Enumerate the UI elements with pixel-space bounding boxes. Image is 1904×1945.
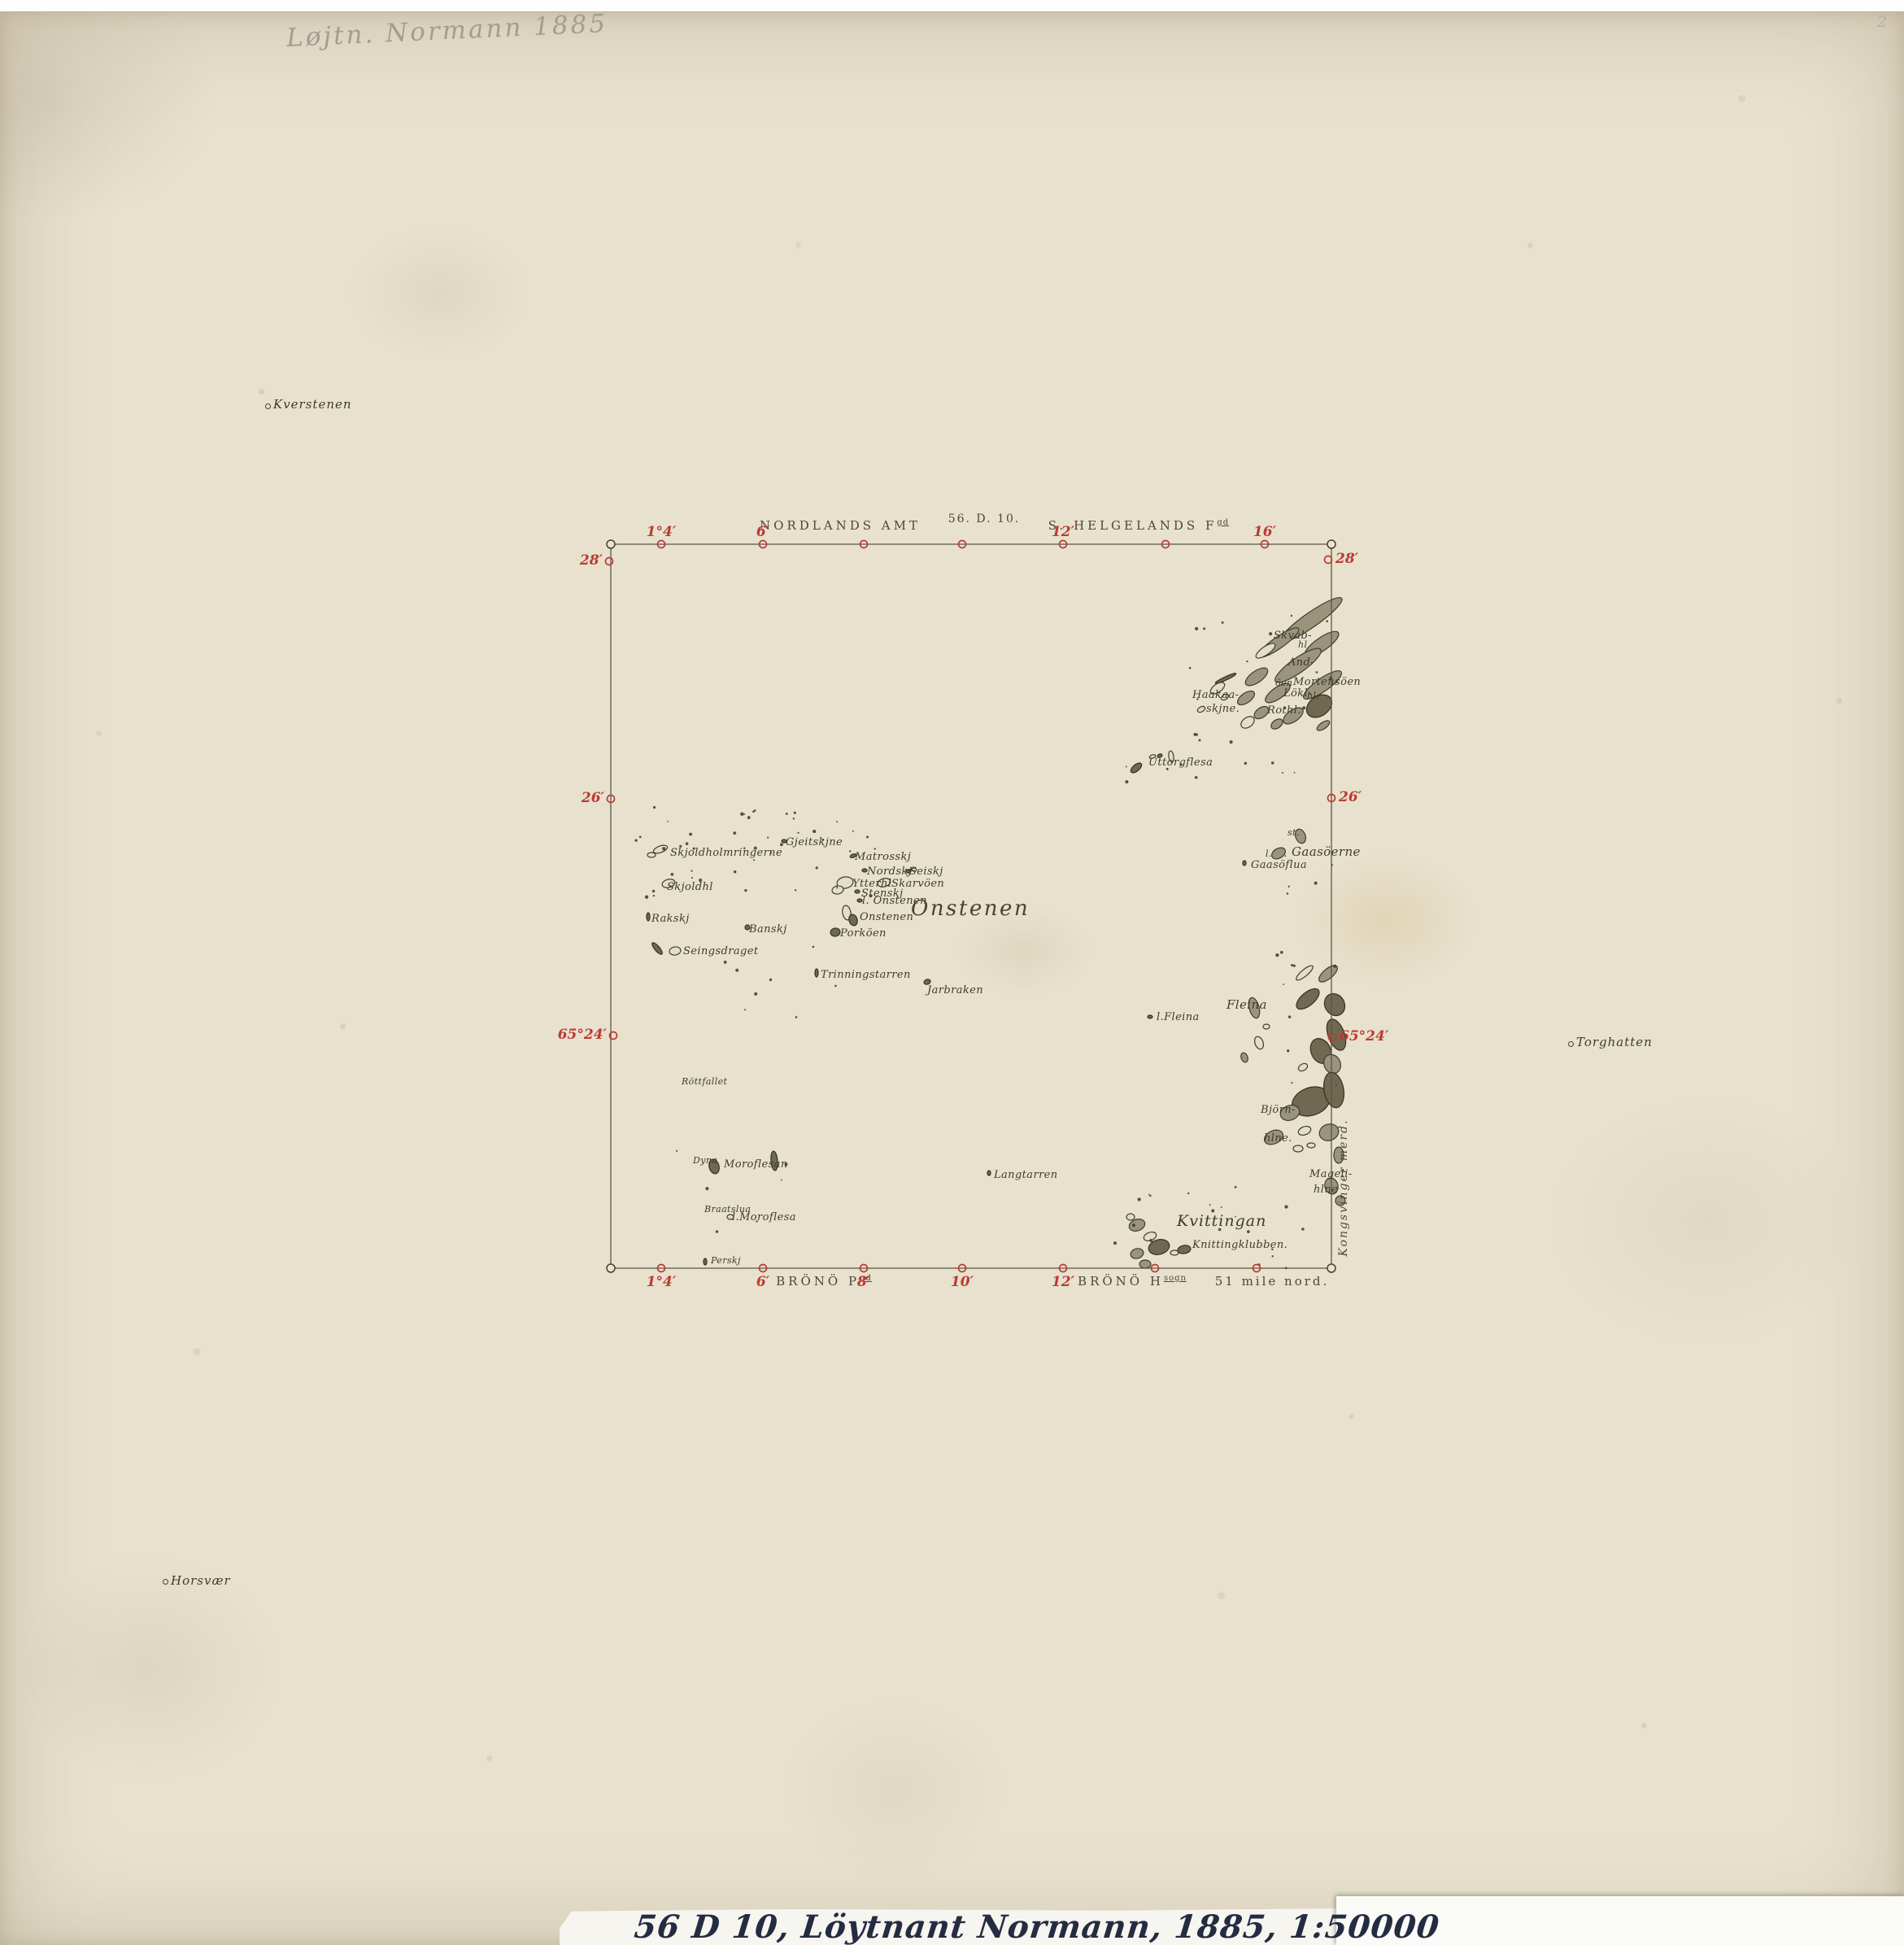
place-label: Rothl. <box>1267 704 1301 717</box>
place-label: Gjeitskjne <box>786 836 843 848</box>
tick-label: 28′ <box>580 552 603 569</box>
place-label: hlne. <box>1264 1132 1292 1145</box>
place-label: Björn- <box>1261 1104 1296 1116</box>
place-label: Trinningstarren <box>821 969 911 981</box>
place-label: hl. <box>1298 639 1310 650</box>
tick-label: 1°4′ <box>647 524 677 540</box>
place-label: l.Moroflesa <box>732 1211 796 1223</box>
place-label: st. <box>1287 827 1300 838</box>
place-label: Perskj <box>711 1255 741 1266</box>
corner-pencil-mark: 2 <box>1877 13 1887 31</box>
mile-note-label: 51 mile nord. <box>1215 1274 1330 1289</box>
place-label: Moroflesan <box>724 1158 788 1171</box>
sheet-number-label: 56. D. 10. <box>948 512 1021 525</box>
tick-label: 12′ <box>1052 1274 1074 1290</box>
tick-label: 26′ <box>582 790 604 806</box>
district-label-brono-hsogn: BRÖNÖ Hsogn <box>1078 1274 1187 1289</box>
tick-label: 10′ <box>951 1274 974 1290</box>
tick-label: 8′ <box>857 1274 870 1290</box>
tick-label: 28′ <box>1335 551 1358 567</box>
place-label: Seiskj <box>909 866 943 878</box>
place-label: Seingsdraget <box>683 945 758 957</box>
place-label: l. <box>1266 848 1272 859</box>
district-label-nordlands: NORDLANDS AMT <box>760 518 921 533</box>
map-labels-layer: NORDLANDS AMT 56. D. 10. S. HELGELANDS F… <box>0 0 1904 1945</box>
place-label: hl. <box>1307 691 1319 701</box>
place-label: Banskj <box>749 923 787 935</box>
meridian-note-label: Kongsvinger merd. <box>1337 1119 1350 1256</box>
outside-place-label: Kverstenen <box>273 397 352 412</box>
place-label: Porköen <box>840 927 887 940</box>
scanned-map-sheet: Løjtn. Normann 1885 2 NORDLANDS AMT 56. … <box>0 0 1904 1945</box>
place-label: skjne. <box>1206 703 1240 715</box>
place-label: Rakskj <box>651 913 690 925</box>
place-label: Mageli- <box>1309 1168 1353 1180</box>
tick-label: 65°24′ <box>1340 1028 1388 1044</box>
place-label: Langtarren <box>994 1169 1058 1181</box>
place-ring-icon <box>265 403 271 409</box>
place-label: Röttfallet <box>682 1076 727 1087</box>
handwritten-caption: 56 D 10, Löytnant Normann, 1885, 1:50000 <box>633 1908 1353 1945</box>
tick-label: 65°24′ <box>558 1027 607 1043</box>
tick-label: 1°4′ <box>647 1274 677 1290</box>
tick-label: 12′ <box>1052 524 1074 540</box>
place-label: Gaasöerne <box>1292 844 1361 859</box>
place-label: l.Fleina <box>1157 1011 1200 1023</box>
tick-label: 6′ <box>756 1274 769 1290</box>
place-label: hlne <box>1314 1184 1338 1196</box>
place-label: Gaasöflua <box>1251 859 1307 871</box>
place-label: Onstenen <box>911 896 1030 921</box>
place-label: Knittingklubben. <box>1192 1239 1287 1251</box>
place-ring-icon <box>163 1579 168 1585</box>
place-label: Matrosskj <box>855 851 911 863</box>
district-label-helgelands: S. HELGELANDS Fgd <box>1048 518 1229 533</box>
place-label: Kvittingan <box>1177 1212 1266 1230</box>
place-label: Haakaa- <box>1192 689 1239 701</box>
outside-place-label: Torghatten <box>1576 1035 1653 1049</box>
place-label: Jarbraken <box>927 984 983 996</box>
place-label: Onstenen <box>860 911 913 923</box>
place-label: Skjoldhl <box>667 881 713 893</box>
place-ring-icon <box>1568 1041 1574 1047</box>
tick-label: 26′ <box>1339 789 1362 805</box>
place-label: Fleina <box>1226 997 1267 1012</box>
place-label: Mortensöen <box>1293 676 1361 688</box>
place-label: Skjoldholmringerne <box>670 847 782 859</box>
place-label: Dyna <box>693 1155 717 1166</box>
place-label: And- <box>1288 656 1314 669</box>
place-label: Nordskj <box>867 866 912 878</box>
tick-label: 16′ <box>1253 524 1276 540</box>
tick-label: 6′ <box>756 524 769 540</box>
place-label: Uttorgflesa <box>1148 757 1213 769</box>
outside-place-label: Horsvær <box>171 1573 231 1588</box>
